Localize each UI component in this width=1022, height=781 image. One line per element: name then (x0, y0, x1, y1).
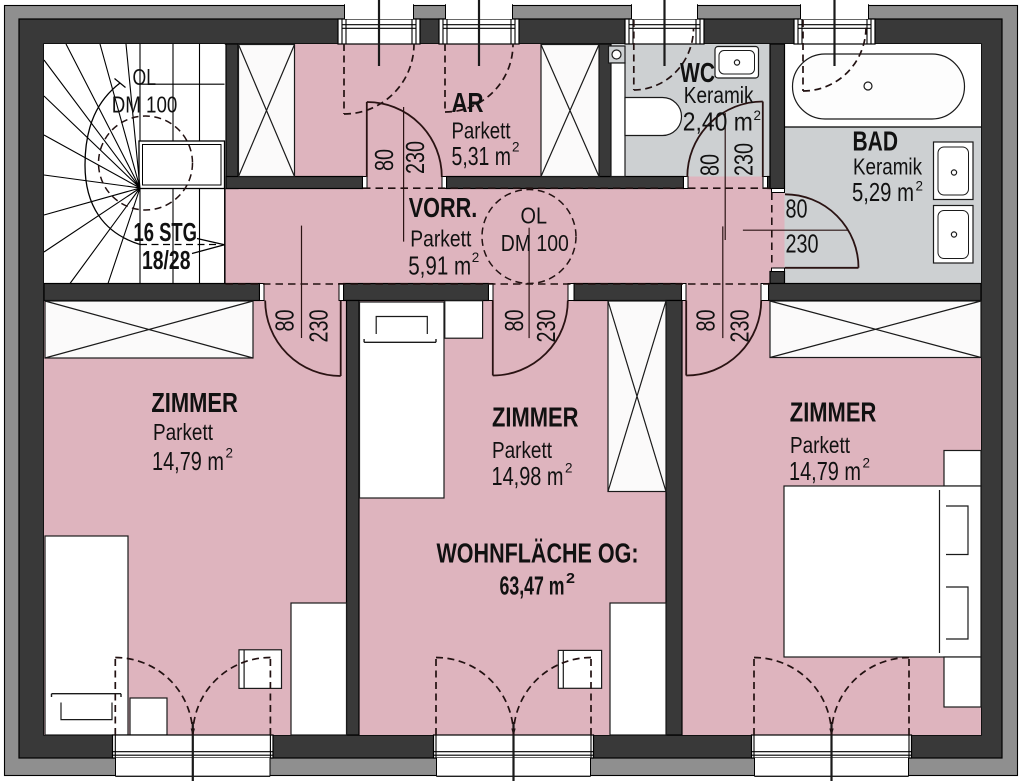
svg-text:2,40 m: 2,40 m (683, 107, 753, 137)
svg-text:230: 230 (729, 143, 759, 176)
svg-text:14,98 m: 14,98 m (492, 461, 564, 491)
svg-text:DM 100: DM 100 (501, 230, 569, 256)
svg-text:Parkett: Parkett (410, 226, 472, 252)
svg-text:230: 230 (786, 229, 819, 259)
svg-text:230: 230 (531, 310, 561, 343)
svg-text:ZIMMER: ZIMMER (790, 397, 877, 428)
svg-text:5,31 m: 5,31 m (452, 141, 512, 171)
svg-text:80: 80 (691, 310, 721, 332)
svg-text:DM 100: DM 100 (112, 91, 178, 117)
svg-text:OL: OL (521, 203, 548, 229)
svg-text:2: 2 (565, 459, 573, 475)
svg-text:Parkett: Parkett (492, 437, 552, 463)
svg-text:2: 2 (863, 454, 871, 470)
svg-text:Keramik: Keramik (853, 154, 922, 180)
svg-text:OL: OL (133, 64, 157, 90)
svg-text:14,79 m: 14,79 m (789, 456, 861, 486)
svg-text:80: 80 (695, 154, 725, 176)
svg-text:2: 2 (472, 249, 480, 265)
svg-text:2: 2 (226, 445, 234, 461)
svg-text:80: 80 (270, 310, 300, 332)
svg-text:18/28: 18/28 (142, 245, 191, 275)
svg-text:2: 2 (916, 178, 924, 194)
svg-text:80: 80 (786, 194, 808, 224)
svg-text:Parkett: Parkett (790, 432, 850, 458)
svg-text:Parkett: Parkett (452, 117, 511, 143)
svg-text:Parkett: Parkett (153, 419, 213, 445)
svg-text:Keramik: Keramik (684, 82, 754, 108)
svg-text:16 STG: 16 STG (134, 217, 198, 247)
svg-text:ZIMMER: ZIMMER (151, 387, 238, 418)
svg-text:2: 2 (512, 139, 520, 155)
svg-text:VORR.: VORR. (409, 192, 478, 223)
svg-text:BAD: BAD (853, 126, 899, 157)
svg-text:2: 2 (754, 107, 762, 123)
svg-text:5,91 m: 5,91 m (408, 250, 471, 280)
svg-text:2: 2 (566, 570, 575, 587)
svg-text:AR: AR (452, 87, 484, 118)
svg-text:WOHNFLÄCHE OG:: WOHNFLÄCHE OG: (437, 538, 639, 569)
svg-text:230: 230 (400, 141, 430, 174)
svg-text:80: 80 (499, 310, 529, 332)
svg-text:63,47 m: 63,47 m (500, 571, 565, 601)
svg-text:80: 80 (369, 149, 399, 171)
svg-text:5,29 m: 5,29 m (852, 177, 914, 207)
svg-text:14,79 m: 14,79 m (152, 446, 224, 476)
svg-text:ZIMMER: ZIMMER (492, 401, 579, 432)
svg-text:230: 230 (304, 310, 334, 343)
svg-text:230: 230 (725, 310, 755, 343)
